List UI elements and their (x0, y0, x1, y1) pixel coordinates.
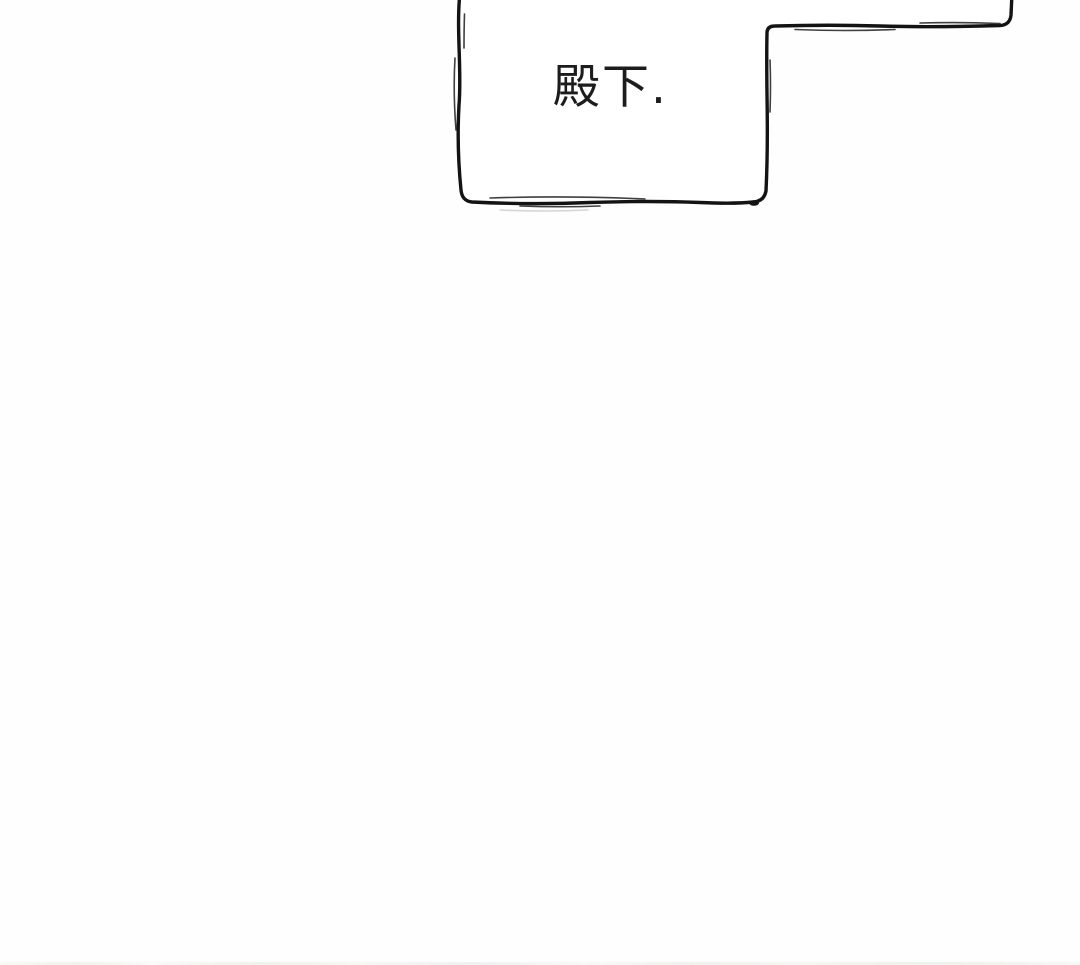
comic-panel: 殿下. (0, 0, 1080, 965)
speech-bubble (0, 0, 1080, 965)
speech-bubble-text: 殿下. (553, 62, 668, 114)
speech-bubble-sketch-stroke (770, 60, 771, 112)
speech-bubble-sketch-stroke (920, 23, 1000, 24)
speech-bubble-sketch-stroke (795, 30, 895, 31)
ink-smudge (500, 210, 588, 211)
speech-bubble-sketch-stroke (520, 206, 600, 207)
speech-bubble-sketch-stroke (454, 58, 456, 130)
speech-bubble-outline (458, 0, 1012, 204)
ink-blob (749, 200, 759, 206)
speech-bubble-sketch-stroke (464, 14, 465, 48)
